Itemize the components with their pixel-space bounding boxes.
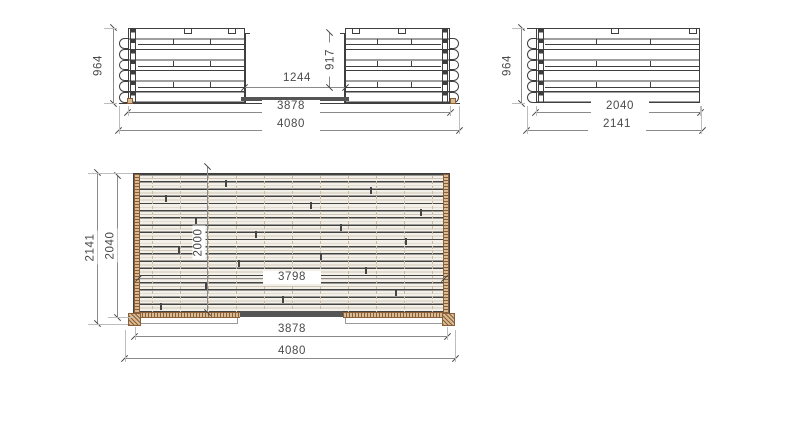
extension-line <box>125 330 126 362</box>
half-log-line <box>138 44 244 45</box>
log-end <box>119 49 128 60</box>
drawing-canvas: 964 1244 917 3878 4080 964 2040 2141 <box>0 0 794 446</box>
joist-line <box>208 176 209 314</box>
joist-line <box>152 176 153 314</box>
half-log-line <box>545 87 699 88</box>
log-end-bumps-left <box>119 38 128 103</box>
log-end <box>119 81 128 92</box>
joist-line <box>320 176 321 314</box>
top-notch <box>689 28 697 34</box>
board-joint <box>395 289 397 296</box>
dim-front-overall-length-label: 4080 <box>262 118 320 131</box>
joist-line <box>376 176 377 314</box>
log-end <box>450 49 459 60</box>
board-joint <box>195 217 197 224</box>
dim-side-overall-length-label: 2141 <box>588 118 646 131</box>
dim-plan-inner-length-line <box>135 336 447 337</box>
extension-line <box>88 173 133 174</box>
dim-plan-inner-length-label: 3878 <box>263 323 321 336</box>
top-notch <box>611 28 619 34</box>
extension-line <box>104 28 117 29</box>
extension-line <box>512 103 525 104</box>
extension-line <box>104 103 117 104</box>
notch-column <box>538 29 544 102</box>
board-joint <box>310 202 312 209</box>
dim-plan-overall-length-line <box>125 358 455 359</box>
joist-line <box>180 176 181 314</box>
extension-line <box>447 327 448 340</box>
board-joint <box>225 180 227 187</box>
notch-column <box>130 29 136 102</box>
dim-front-height-line <box>113 28 114 103</box>
board-joint <box>255 231 257 238</box>
half-log-line <box>346 44 441 45</box>
extension-line <box>701 106 702 134</box>
notch-column <box>442 29 448 102</box>
corner-post-mark <box>450 98 456 104</box>
extension-line <box>88 324 128 325</box>
threshold-strip <box>240 311 343 317</box>
half-log-line <box>346 66 441 67</box>
extension-line <box>135 327 136 340</box>
dim-side-height-line <box>521 28 522 103</box>
log-end <box>527 92 536 103</box>
dim-plan-inner-depth-label: 2040 <box>105 229 118 263</box>
deck-edge-right <box>443 174 449 316</box>
log-end <box>450 60 459 71</box>
extension-line <box>450 106 451 116</box>
joist-line <box>236 176 237 314</box>
top-notch <box>352 28 360 34</box>
joist-line <box>348 176 349 314</box>
log-end <box>450 81 459 92</box>
joist-line <box>432 176 433 314</box>
half-log-line <box>545 44 699 45</box>
half-log-line <box>545 66 699 67</box>
extension-line <box>536 106 537 116</box>
board-joint <box>405 238 407 245</box>
joist-line <box>264 176 265 314</box>
extension-line <box>459 106 460 134</box>
dim-deck-length-label: 3798 <box>263 271 321 284</box>
dim-plan-overall-depth-label: 2141 <box>85 231 98 265</box>
dim-opening-height-label: 917 <box>325 43 338 77</box>
dim-deck-depth-line <box>207 167 208 312</box>
board-joint <box>370 187 372 194</box>
board-joint <box>160 303 162 310</box>
board-joint <box>420 209 422 216</box>
extension-line <box>119 106 120 134</box>
dim-side-inner-length-label: 2040 <box>591 100 649 113</box>
log-end-bumps-right <box>450 38 459 103</box>
log-end <box>450 70 459 81</box>
half-log-line <box>346 87 441 88</box>
log-end <box>527 38 536 49</box>
log-end-bumps-left <box>527 38 536 103</box>
board-joint <box>365 267 367 274</box>
extension-line <box>108 317 133 318</box>
log-end <box>119 38 128 49</box>
lower-wall-edge-right <box>345 318 444 324</box>
jamb-cap <box>340 33 346 34</box>
corner-post-bottom-left <box>128 313 141 326</box>
log-end <box>527 60 536 71</box>
extension-line <box>455 330 456 362</box>
dim-front-height-label: 964 <box>93 49 106 83</box>
dim-opening-width-label: 1244 <box>270 72 324 85</box>
extension-line <box>512 28 525 29</box>
extension-line <box>527 106 528 134</box>
board-joint <box>340 224 342 231</box>
half-log-line <box>138 87 244 88</box>
lower-wall-edge-left <box>139 318 238 324</box>
log-end <box>527 49 536 60</box>
deck-edge-left <box>134 174 140 316</box>
dim-deck-depth-label: 2000 <box>193 226 206 260</box>
joist-line <box>404 176 405 314</box>
board-joint <box>320 253 322 260</box>
top-notch <box>184 28 192 34</box>
board-joint <box>178 246 180 253</box>
board-joint <box>165 195 167 202</box>
dim-plan-overall-length-label: 4080 <box>263 345 321 358</box>
log-end <box>119 70 128 81</box>
board-joint <box>282 296 284 303</box>
jamb-cap <box>244 33 250 34</box>
top-notch <box>228 28 236 34</box>
dim-side-height-label: 964 <box>502 49 515 83</box>
half-log-line <box>138 66 244 67</box>
joist-line <box>292 176 293 314</box>
log-end <box>450 38 459 49</box>
top-notch <box>398 28 406 34</box>
log-end <box>119 60 128 71</box>
log-end <box>527 70 536 81</box>
log-end <box>527 81 536 92</box>
dim-front-inner-length-label: 3878 <box>262 100 320 113</box>
opening-jamb-left <box>244 33 246 103</box>
corner-post-mark <box>127 98 133 104</box>
corner-post-bottom-right <box>442 313 455 326</box>
opening-jamb-right <box>344 33 346 103</box>
board-joint <box>238 260 240 267</box>
extension-line <box>128 106 129 116</box>
